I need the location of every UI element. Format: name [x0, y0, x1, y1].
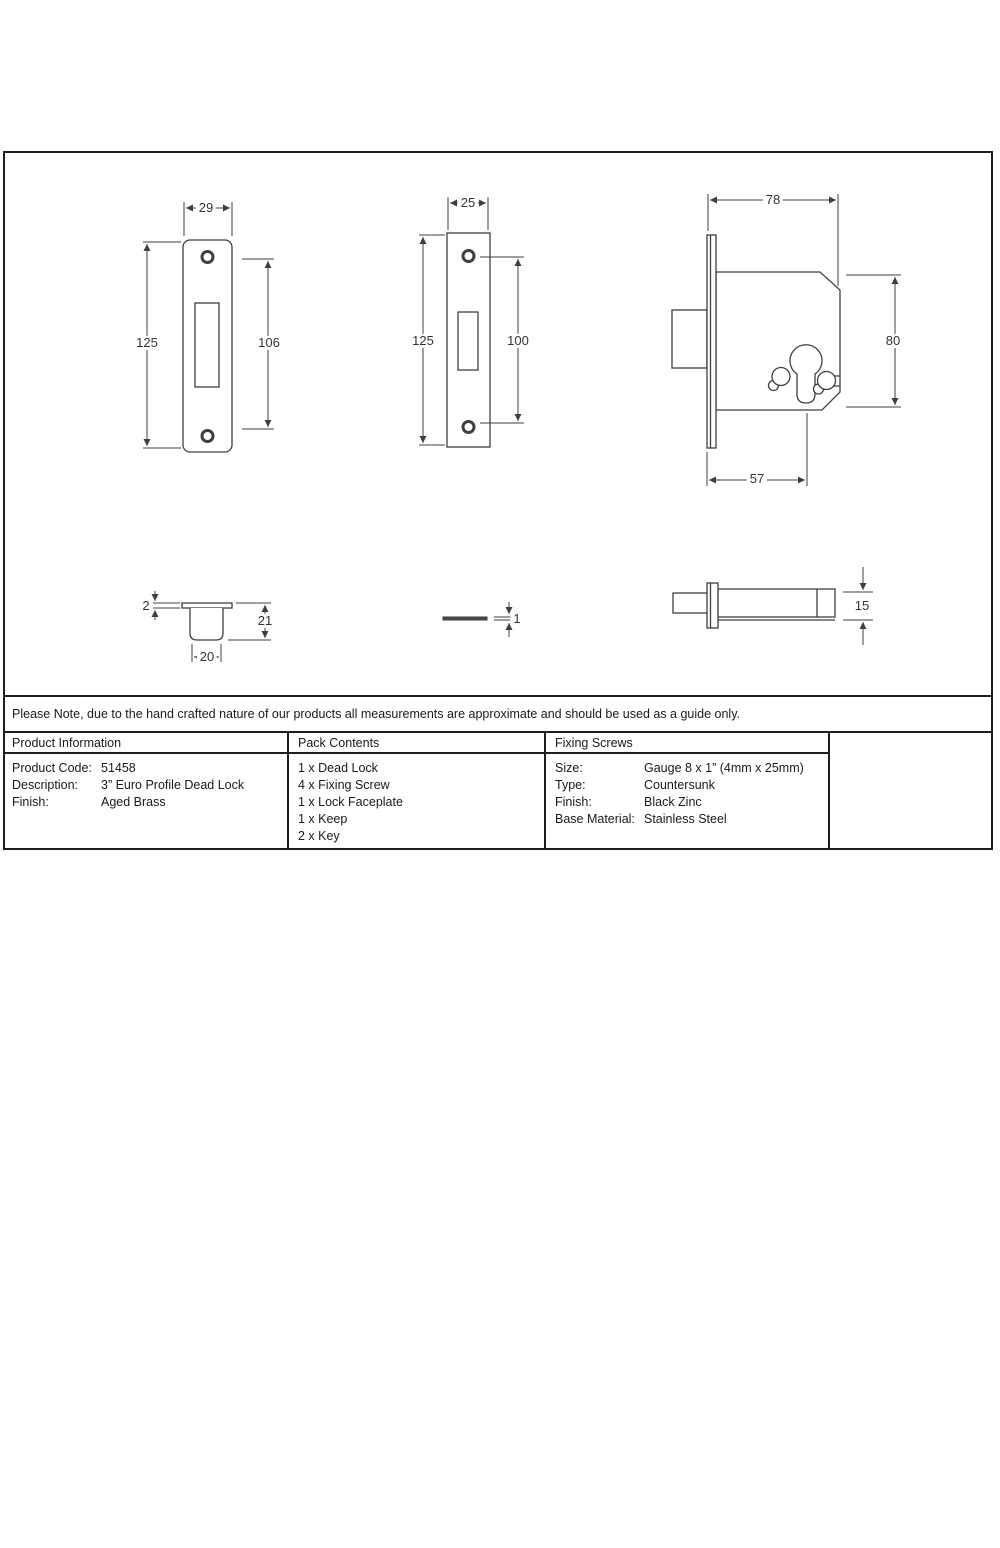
pack-contents-cell: Pack Contents 1 x Dead Lock 4 x Fixing S…: [289, 733, 546, 850]
dim-label-lock-case-thickness: 15: [852, 599, 872, 613]
screw-finish-value: Black Zinc: [644, 794, 702, 811]
pack-item: 2 x Key: [298, 828, 544, 845]
screw-type-label: Type:: [555, 777, 644, 794]
screw-size-row: Size: Gauge 8 x 1” (4mm x 25mm): [555, 760, 828, 777]
fixing-screws-header: Fixing Screws: [546, 733, 828, 754]
pack-item: 1 x Keep: [298, 811, 544, 828]
screw-finish-label: Finish:: [555, 794, 644, 811]
dim-label-lock-case-width: 78: [763, 193, 783, 207]
description-row: Description: 3” Euro Profile Dead Lock: [12, 777, 287, 794]
dim-label-faceplate-screw-span: 106: [255, 336, 283, 350]
screw-type-row: Type: Countersunk: [555, 777, 828, 794]
dim-label-keep-width: 20: [197, 650, 217, 664]
dim-label-faceplate-thickness: 1: [510, 612, 523, 626]
dim-label-keep-plate-screw-span: 100: [504, 334, 532, 348]
pack-contents-header: Pack Contents: [289, 733, 544, 754]
product-code-label: Product Code:: [12, 760, 101, 777]
product-information-header: Product Information: [3, 733, 287, 754]
measurement-disclaimer-text: Please Note, due to the hand crafted nat…: [12, 707, 740, 721]
screw-type-value: Countersunk: [644, 777, 715, 794]
product-code-value: 51458: [101, 760, 136, 777]
measurement-disclaimer-row: Please Note, due to the hand crafted nat…: [3, 695, 993, 733]
dim-label-faceplate-height: 125: [133, 336, 161, 350]
pack-item: 1 x Dead Lock: [298, 760, 544, 777]
description-label: Description:: [12, 777, 101, 794]
dim-label-keep-depth: 21: [255, 614, 275, 628]
pack-item: 1 x Lock Faceplate: [298, 794, 544, 811]
finish-value: Aged Brass: [101, 794, 166, 811]
dim-label-keep-plate-width: 25: [458, 196, 478, 210]
pack-item: 4 x Fixing Screw: [298, 777, 544, 794]
finish-label: Finish:: [12, 794, 101, 811]
product-code-row: Product Code: 51458: [12, 760, 287, 777]
screw-size-value: Gauge 8 x 1” (4mm x 25mm): [644, 760, 804, 777]
screw-material-row: Base Material: Stainless Steel: [555, 811, 828, 828]
dim-label-lock-case-height: 80: [883, 334, 903, 348]
screw-material-value: Stainless Steel: [644, 811, 727, 828]
dim-label-lock-case-backset: 57: [747, 472, 767, 486]
screw-size-label: Size:: [555, 760, 644, 777]
dim-label-keep-plate-height: 125: [409, 334, 437, 348]
fixing-screws-cell: Fixing Screws Size: Gauge 8 x 1” (4mm x …: [546, 733, 830, 850]
screw-finish-row: Finish: Black Zinc: [555, 794, 828, 811]
dim-label-keep-flange-thickness: 2: [139, 599, 152, 613]
brand-logo-cell: nvil From the ♦ ®: [830, 733, 993, 850]
dim-label-faceplate-width: 29: [196, 201, 216, 215]
finish-row: Finish: Aged Brass: [12, 794, 287, 811]
screw-material-label: Base Material:: [555, 811, 644, 828]
product-information-cell: Product Information Product Code: 51458 …: [3, 733, 289, 850]
description-value: 3” Euro Profile Dead Lock: [101, 777, 244, 794]
